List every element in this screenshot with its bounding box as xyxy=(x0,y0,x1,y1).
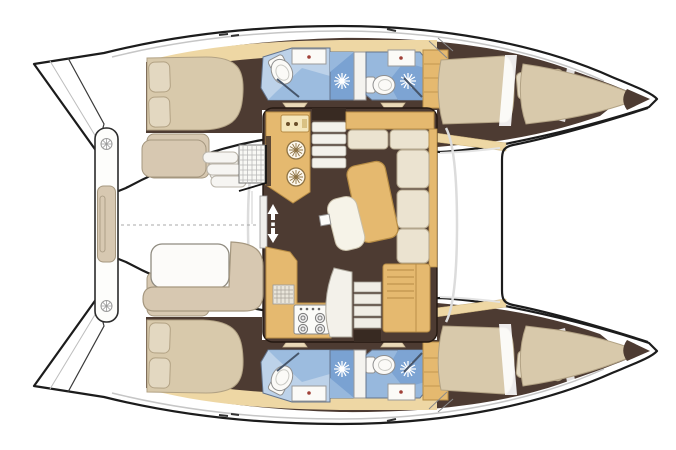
pillow xyxy=(148,97,170,128)
round-sink-icon xyxy=(287,168,305,186)
sofa-backrest xyxy=(346,112,434,129)
stairs-port xyxy=(312,108,346,168)
salon xyxy=(260,108,437,342)
nav-locker xyxy=(383,264,430,332)
trampoline xyxy=(502,108,648,342)
faucet-dot xyxy=(307,55,311,59)
sofa-cushion xyxy=(348,130,388,149)
grid-appliance xyxy=(273,285,294,304)
round-sink-icon xyxy=(287,141,305,159)
stairs-starboard xyxy=(354,282,381,342)
catamaran-floor-plan xyxy=(0,0,676,450)
faucet-dot xyxy=(399,56,403,60)
shower-stall xyxy=(330,52,366,100)
shower-rose-center xyxy=(340,79,345,84)
cockpit-table xyxy=(151,244,229,288)
sofa-cushion xyxy=(390,130,429,149)
forward-head xyxy=(366,50,425,100)
appliance-knob xyxy=(294,122,298,126)
mast-post xyxy=(319,214,331,226)
stove-icon xyxy=(294,305,329,334)
aft-head xyxy=(261,48,330,100)
galley-sink-unit xyxy=(266,112,310,203)
appliance-panel xyxy=(302,119,307,128)
appliance-knob xyxy=(286,122,290,126)
sofa-cushion xyxy=(397,190,429,228)
sofa-cushion xyxy=(397,150,429,188)
deck-ring-icon xyxy=(101,139,112,150)
sofa-cushion xyxy=(397,229,429,263)
cockpit-seat xyxy=(142,140,206,177)
toilet xyxy=(366,76,395,95)
shower-door xyxy=(354,52,366,100)
coachroof-line-fwd xyxy=(446,128,457,322)
foredeck-shade xyxy=(440,148,500,302)
deck-ring-icon xyxy=(101,301,112,312)
pillow xyxy=(148,62,170,93)
sliding-door xyxy=(260,196,267,248)
sofa-side-wood xyxy=(429,129,437,267)
